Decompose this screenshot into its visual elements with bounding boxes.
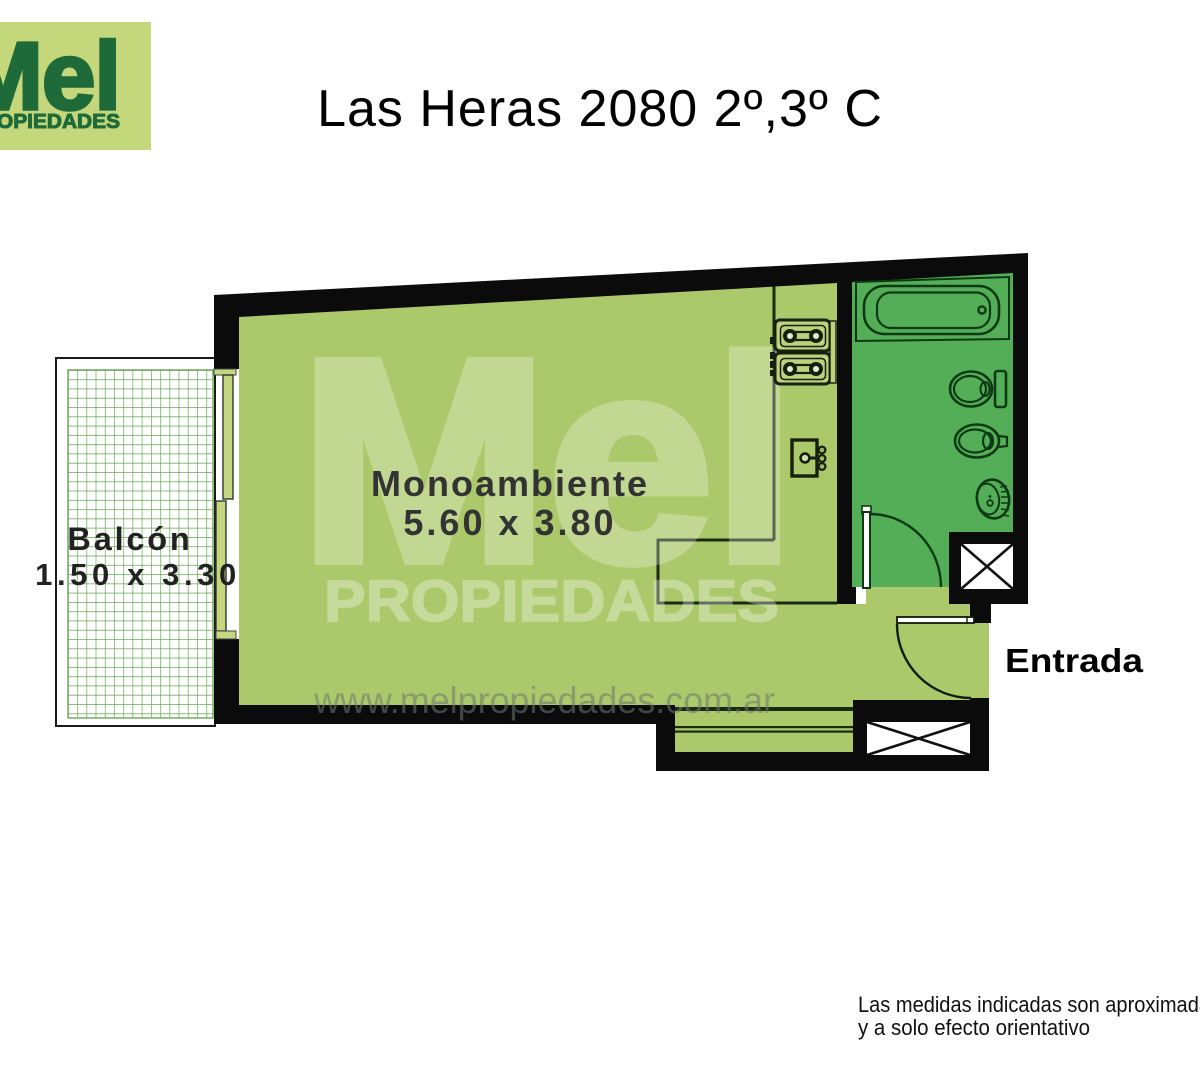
svg-text:PROPIEDADES: PROPIEDADES <box>0 110 120 133</box>
svg-text:Las medidas indicadas son apro: Las medidas indicadas son aproximadas <box>858 992 1200 1017</box>
svg-text:1.50 x 3.30: 1.50 x 3.30 <box>35 557 241 592</box>
svg-text:Monoambiente: Monoambiente <box>371 463 649 504</box>
svg-text:y a solo efecto orientativo: y a solo efecto orientativo <box>858 1015 1090 1040</box>
svg-text:Balcón: Balcón <box>67 521 192 557</box>
svg-text:PROPIEDADES: PROPIEDADES <box>324 569 779 634</box>
svg-text:Entrada: Entrada <box>1005 642 1144 679</box>
svg-text:www.melpropiedades.com.ar: www.melpropiedades.com.ar <box>313 680 775 721</box>
svg-text:5.60 x 3.80: 5.60 x 3.80 <box>403 502 616 543</box>
svg-text:Las Heras 2080 2º,3º C: Las Heras 2080 2º,3º C <box>317 80 883 138</box>
